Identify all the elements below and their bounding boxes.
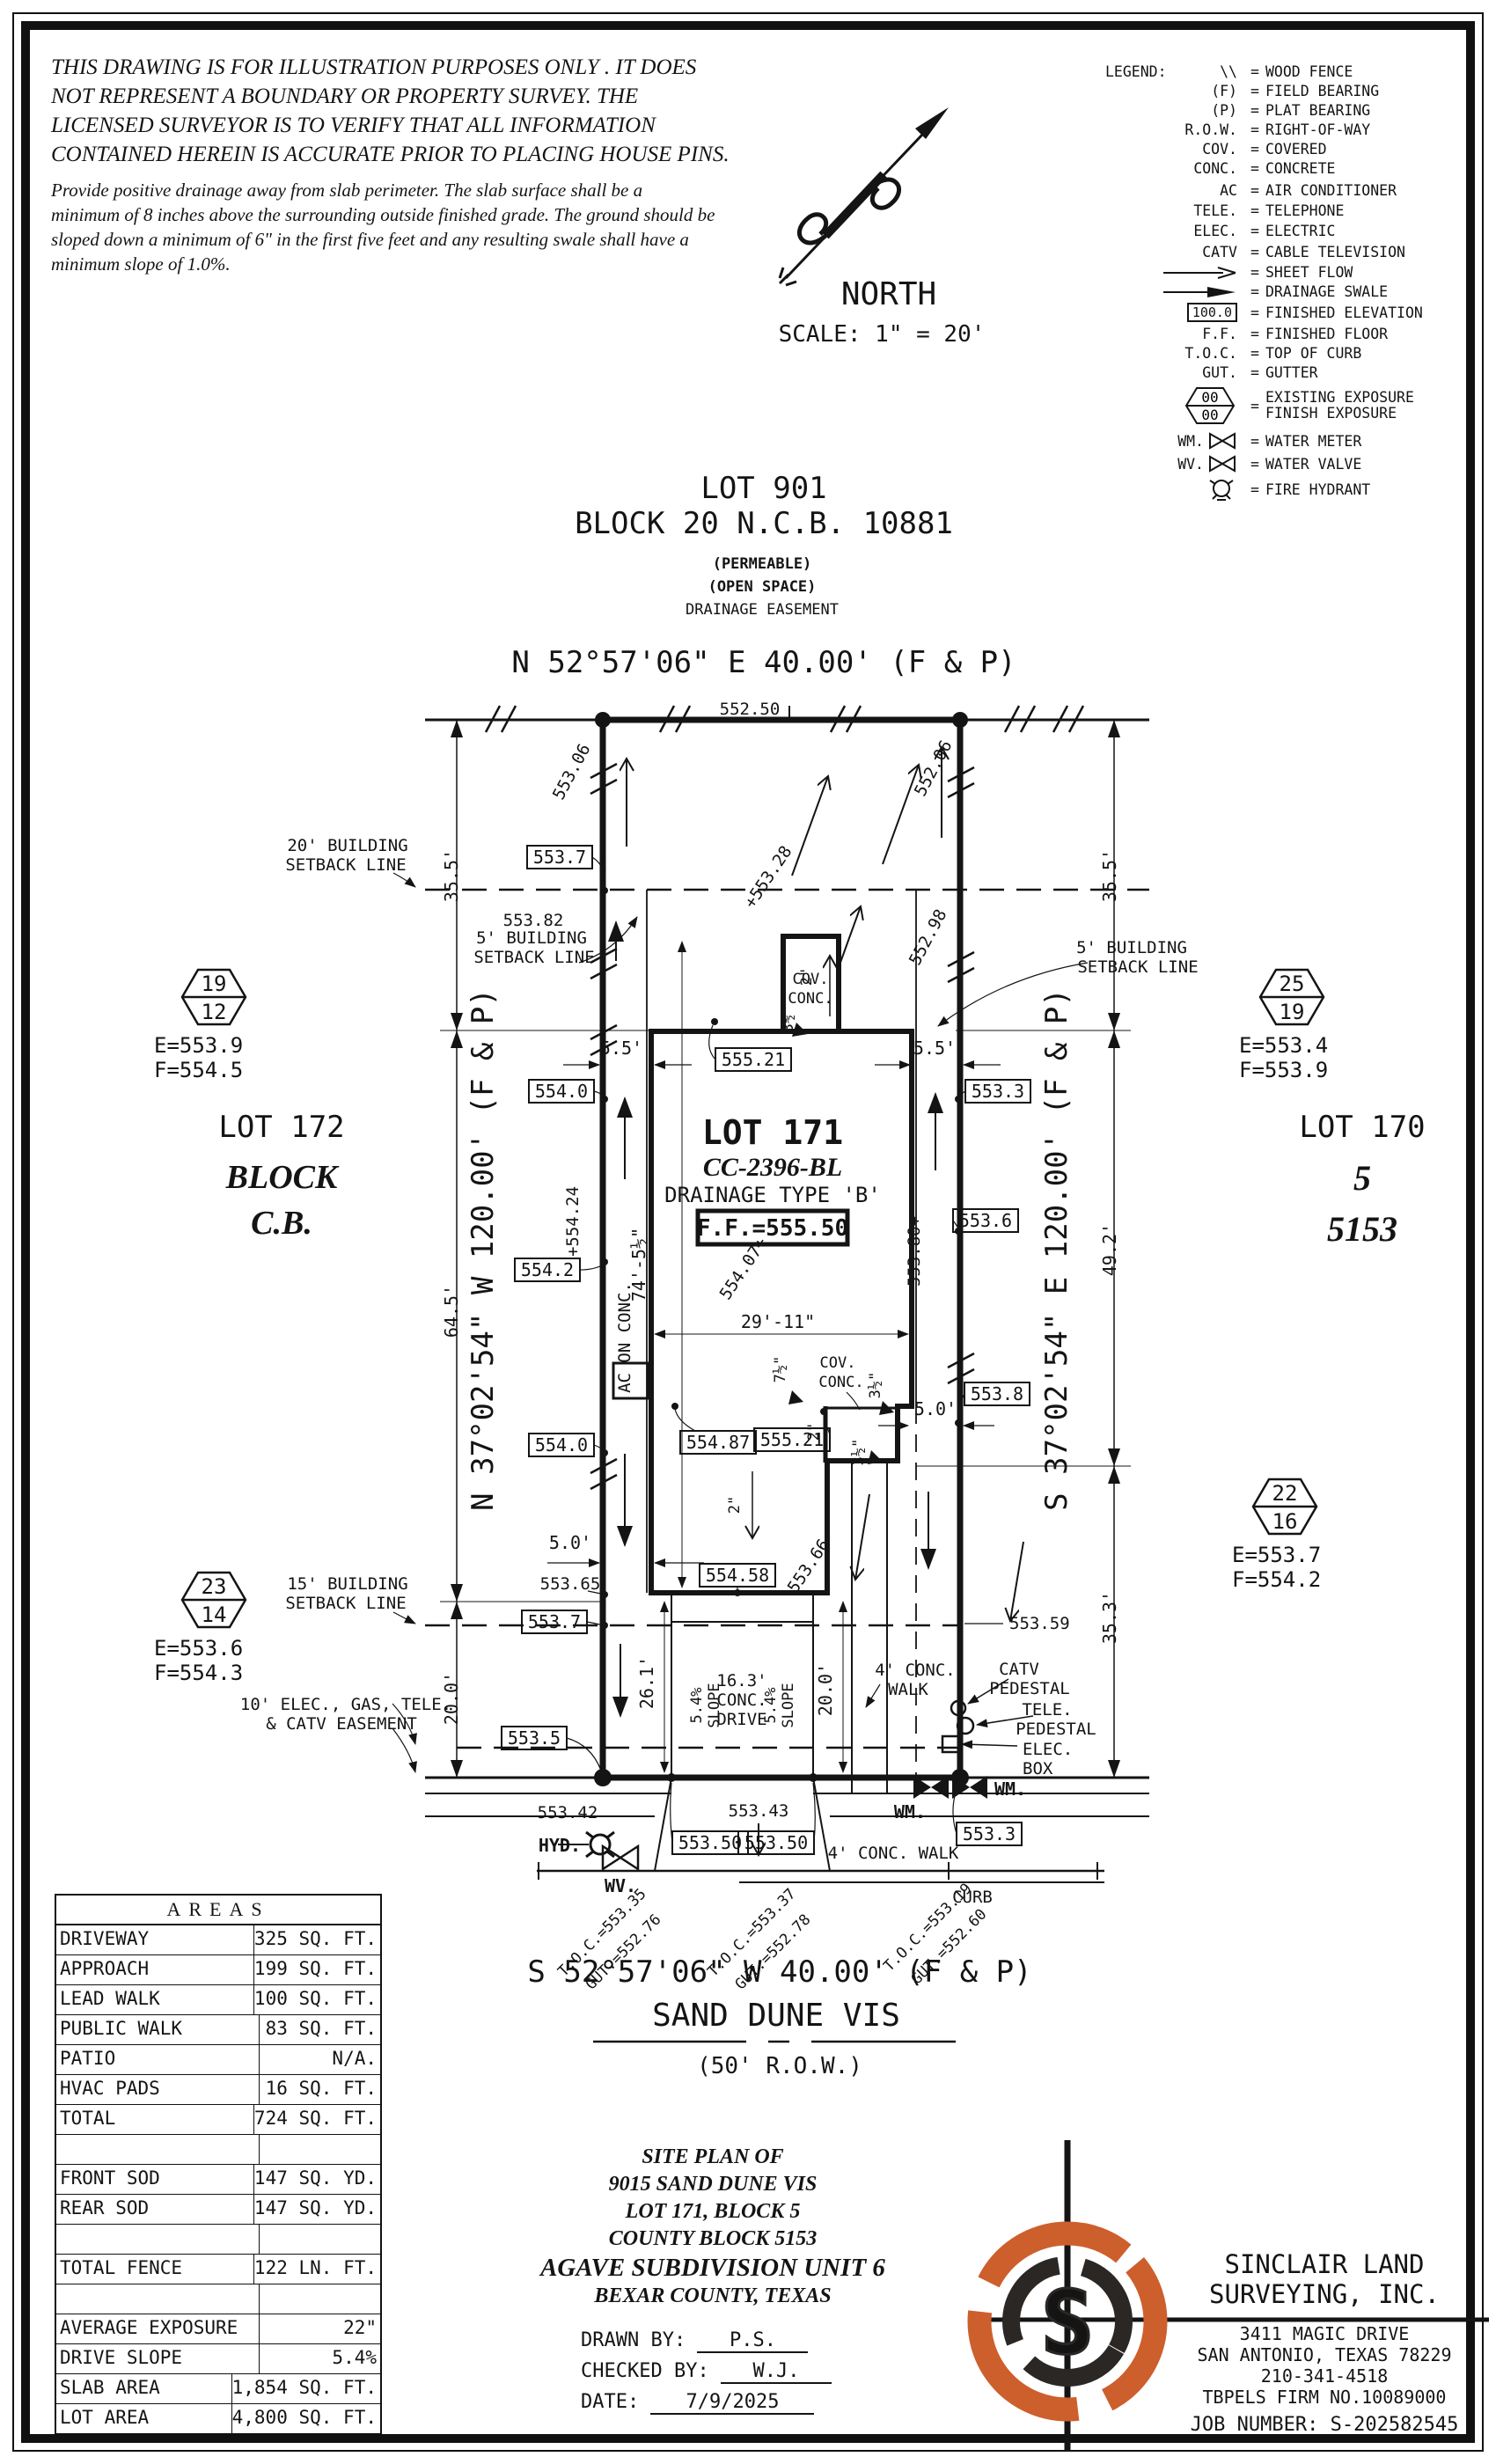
adjacent-cb-number-right: 5153 (1327, 1209, 1397, 1249)
svg-text:5.0': 5.0' (914, 1398, 957, 1419)
street-name: SAND DUNE VIS (652, 1998, 900, 2034)
table-row-blank (56, 2135, 380, 2165)
svg-text:553.42: 553.42 (538, 1803, 598, 1822)
water-valve-symbol (603, 1846, 638, 1869)
company-address: SAN ANTONIO, TEXAS 78229 (1175, 2344, 1474, 2365)
svg-text:553.50: 553.50 (678, 1832, 742, 1853)
svg-text:26.1': 26.1' (636, 1656, 657, 1709)
svg-text:SLOPE: SLOPE (780, 1683, 797, 1727)
bearing-east: S 37°02'54" E 120.00' (F & P) (1039, 988, 1074, 1511)
survey-sheet: THIS DRAWING IS FOR ILLUSTRATION PURPOSE… (0, 0, 1496, 2464)
house-outline (613, 936, 912, 1622)
svg-text:553.06: 553.06 (549, 741, 595, 803)
street-row-width: (50' R.O.W.) (697, 2053, 862, 2079)
svg-text:552.98: 552.98 (906, 906, 951, 969)
adjacent-block-right: 5 (1353, 1158, 1371, 1198)
svg-text:15' BUILDING: 15' BUILDING (287, 1574, 407, 1594)
title-address: 9015 SAND DUNE VIS (493, 2171, 933, 2198)
svg-text:+553.28: +553.28 (741, 842, 796, 912)
table-row: REAR SOD147 SQ. YD. (56, 2195, 380, 2225)
svg-text:553.3: 553.3 (963, 1823, 1016, 1844)
svg-text:COV.: COV. (820, 1354, 856, 1372)
svg-text:16: 16 (1272, 1509, 1298, 1534)
adjacent-block-left: BLOCK (225, 1159, 340, 1196)
company-phone: 210-341-4518 (1175, 2365, 1474, 2387)
svg-text:+554.24: +554.24 (563, 1186, 583, 1257)
table-row: FRONT SOD147 SQ. YD. (56, 2165, 380, 2195)
svg-text:5.4%: 5.4% (762, 1688, 780, 1724)
areas-table-title: AREAS (56, 1896, 380, 1925)
adjacent-lot-left: LOT 172 (218, 1110, 344, 1145)
checked-by-label: CHECKED BY: (581, 2360, 709, 2382)
table-row: AVERAGE EXPOSURE22" (56, 2314, 380, 2344)
svg-text:5.0': 5.0' (549, 1532, 591, 1553)
scale-label: SCALE: 1" = 20' (779, 321, 986, 348)
exposure-hexagon-left-top: 19 12 E=553.9 F=554.5 (154, 970, 246, 1082)
svg-text:10' ELEC., GAS, TELE.: 10' ELEC., GAS, TELE. (240, 1695, 451, 1714)
svg-text:5' BUILDING: 5' BUILDING (476, 928, 587, 948)
svg-text:E=553.9: E=553.9 (154, 1033, 243, 1058)
svg-text:23: 23 (202, 1574, 227, 1599)
svg-text:DRIVE: DRIVE (716, 1710, 766, 1729)
table-row-blank (56, 2284, 380, 2314)
svg-text:4' CONC. WALK: 4' CONC. WALK (828, 1844, 959, 1863)
svg-text:14: 14 (202, 1602, 227, 1627)
svg-text:553.59: 553.59 (1009, 1614, 1070, 1633)
svg-text:CONC.: CONC. (818, 1374, 863, 1391)
company-address: 3411 MAGIC DRIVE (1175, 2323, 1474, 2344)
svg-text:553.6: 553.6 (959, 1210, 1012, 1231)
areas-table: AREAS DRIVEWAY325 SQ. FT. APPROACH199 SQ… (55, 1894, 382, 2435)
logo-letter-s: S (1041, 2271, 1094, 2374)
table-row: HVAC PADS16 SQ. FT. (56, 2075, 380, 2105)
finished-floor-box: F.F.=555.50 (697, 1211, 848, 1244)
svg-text:5.5': 5.5' (600, 1038, 642, 1059)
svg-text:554.58: 554.58 (706, 1565, 769, 1586)
svg-text:CONC.: CONC. (788, 990, 832, 1008)
svg-text:22: 22 (1272, 1481, 1298, 1506)
lot171-title: LOT 171 (702, 1113, 843, 1152)
bearing-south: S 52°57'06" W 40.00' (F & P) (527, 1954, 1031, 1990)
drawn-by-label: DRAWN BY: (581, 2329, 686, 2351)
adjacent-lot-right: LOT 170 (1299, 1110, 1425, 1145)
svg-text:554.0: 554.0 (535, 1434, 588, 1456)
svg-text:552.50: 552.50 (720, 700, 781, 719)
svg-text:553.3: 553.3 (972, 1081, 1024, 1102)
table-row: TOTAL724 SQ. FT. (56, 2105, 380, 2135)
svg-text:49.2': 49.2' (1099, 1223, 1120, 1276)
svg-text:553.82: 553.82 (503, 911, 564, 930)
svg-text:19: 19 (1280, 1000, 1305, 1024)
svg-text:HYD.: HYD. (539, 1835, 581, 1856)
title-county-block: COUNTY BLOCK 5153 (493, 2226, 933, 2253)
svg-text:F=554.2: F=554.2 (1232, 1567, 1321, 1592)
svg-text:553.8: 553.8 (971, 1383, 1023, 1404)
company-block: SINCLAIR LAND SURVEYING, INC. 3411 MAGIC… (1175, 2249, 1474, 2436)
svg-text:PEDESTAL: PEDESTAL (989, 1679, 1070, 1698)
svg-text:553.5: 553.5 (508, 1727, 561, 1749)
svg-text:25: 25 (1280, 972, 1305, 996)
svg-text:BOX: BOX (1023, 1759, 1053, 1778)
svg-text:35.5': 35.5' (1099, 849, 1120, 902)
lot171-drainage-type: DRAINAGE TYPE 'B' (664, 1183, 881, 1207)
north-label: NORTH (841, 276, 936, 312)
svg-text:553.65: 553.65 (540, 1574, 601, 1594)
svg-text:SLOPE: SLOPE (706, 1683, 723, 1727)
svg-text:553.80+: 553.80+ (905, 1216, 924, 1287)
svg-text:WALK: WALK (888, 1680, 928, 1699)
table-row: LEAD WALK100 SQ. FT. (56, 1985, 380, 2015)
svg-text:5.5': 5.5' (913, 1038, 956, 1059)
title-line: SITE PLAN OF (493, 2144, 933, 2171)
date-value: 7/9/2025 (650, 2391, 814, 2415)
svg-text:7½": 7½" (772, 1356, 789, 1383)
svg-text:553.43: 553.43 (729, 1801, 789, 1821)
svg-text:F=554.5: F=554.5 (154, 1058, 243, 1082)
svg-text:CATV: CATV (999, 1660, 1039, 1679)
date-label: DATE: (581, 2391, 639, 2413)
table-row: APPROACH199 SQ. FT. (56, 1955, 380, 1985)
svg-text:553.50: 553.50 (744, 1832, 808, 1853)
svg-text:WM.: WM. (894, 1801, 926, 1822)
drainage-easement-note: DRAINAGE EASEMENT (686, 601, 839, 619)
svg-text:554.2: 554.2 (521, 1259, 574, 1280)
svg-text:12: 12 (202, 1000, 227, 1024)
lot901-block: BLOCK 20 N.C.B. 10881 (575, 506, 953, 541)
svg-text:SETBACK LINE: SETBACK LINE (285, 1594, 406, 1613)
drawn-by-value: P.S. (697, 2329, 808, 2353)
svg-text:4' CONC.: 4' CONC. (875, 1661, 956, 1680)
svg-text:COV.: COV. (793, 971, 829, 988)
table-row: DRIVEWAY325 SQ. FT. (56, 1925, 380, 1955)
table-row: PUBLIC WALK83 SQ. FT. (56, 2015, 380, 2045)
svg-text:553.7: 553.7 (528, 1611, 581, 1632)
svg-text:TELE.: TELE. (1022, 1700, 1072, 1720)
svg-text:E=553.7: E=553.7 (1232, 1543, 1321, 1567)
svg-text:19: 19 (202, 972, 227, 996)
svg-text:SETBACK LINE: SETBACK LINE (1077, 957, 1198, 977)
svg-text:5' BUILDING: 5' BUILDING (1076, 938, 1187, 957)
company-name: SURVEYING, INC. (1175, 2279, 1474, 2309)
company-name: SINCLAIR LAND (1175, 2249, 1474, 2279)
svg-text:SETBACK LINE: SETBACK LINE (473, 948, 594, 967)
lot901-title: LOT 901 (700, 471, 826, 506)
elec-box-symbol (942, 1736, 1017, 1752)
title-block: SITE PLAN OF 9015 SAND DUNE VIS LOT 171,… (493, 2144, 933, 2422)
svg-text:16.3': 16.3' (716, 1671, 766, 1690)
svg-text:PEDESTAL: PEDESTAL (1016, 1720, 1096, 1739)
svg-text:20' BUILDING: 20' BUILDING (287, 836, 407, 855)
svg-text:F=554.3: F=554.3 (154, 1661, 243, 1685)
svg-text:SETBACK LINE: SETBACK LINE (285, 855, 406, 875)
svg-text:29'-11": 29'-11" (741, 1311, 815, 1332)
svg-text:64.5': 64.5' (441, 1285, 462, 1338)
svg-text:F=553.9: F=553.9 (1239, 1058, 1328, 1082)
title-county: BEXAR COUNTY, TEXAS (493, 2283, 933, 2310)
exposure-hexagon-right-bottom: 22 16 E=553.7 F=554.2 (1232, 1479, 1321, 1592)
svg-text:35.5': 35.5' (441, 849, 462, 902)
permeable-note: (PERMEABLE) (713, 555, 812, 573)
svg-text:AC ON CONC.: AC ON CONC. (615, 1282, 634, 1393)
checked-by-value: W.J. (721, 2360, 832, 2384)
exposure-hexagon-right-top: 25 19 E=553.4 F=553.9 (1239, 970, 1328, 1082)
svg-text:E=553.4: E=553.4 (1239, 1033, 1328, 1058)
exposure-hexagon-left-bottom: 23 14 E=553.6 F=554.3 (154, 1573, 246, 1685)
svg-text:ELEC.: ELEC. (1023, 1740, 1073, 1759)
svg-text:2": 2" (805, 1423, 823, 1441)
table-row: DRIVE SLOPE5.4% (56, 2344, 380, 2374)
svg-text:WM.: WM. (994, 1778, 1026, 1800)
svg-text:553.7: 553.7 (533, 847, 586, 868)
svg-text:2": 2" (726, 1496, 744, 1514)
lot171-cc-number: CC-2396-BL (703, 1153, 842, 1182)
open-space-note: (OPEN SPACE) (708, 578, 817, 596)
svg-text:3½": 3½" (850, 1439, 868, 1466)
table-row-blank (56, 2225, 380, 2255)
bearing-west: N 37°02'54" W 120.00' (F & P) (466, 988, 501, 1511)
svg-text:5.4%: 5.4% (688, 1688, 706, 1724)
table-row: TOTAL FENCE122 LN. FT. (56, 2255, 380, 2284)
north-arrow (780, 107, 949, 285)
svg-text:20.0': 20.0' (815, 1663, 836, 1716)
svg-text:554.87: 554.87 (686, 1432, 750, 1453)
adjacent-cb-left: C.B. (251, 1205, 312, 1242)
svg-text:554.0: 554.0 (535, 1081, 588, 1102)
table-row: PATION/A. (56, 2045, 380, 2075)
job-number: JOB NUMBER: S-202582545 (1175, 2414, 1474, 2436)
svg-text:555.21: 555.21 (722, 1049, 785, 1070)
title-subdivision: AGAVE SUBDIVISION UNIT 6 (493, 2253, 933, 2283)
company-firm-number: TBPELS FIRM NO.10089000 (1175, 2387, 1474, 2408)
svg-text:E=553.6: E=553.6 (154, 1636, 243, 1661)
bearing-north: N 52°57'06" E 40.00' (F & P) (511, 645, 1016, 680)
svg-text:35.3': 35.3' (1099, 1591, 1120, 1644)
svg-text:3½": 3½" (867, 1372, 884, 1399)
svg-text:CONC.: CONC. (716, 1690, 766, 1710)
table-row: SLAB AREA1,854 SQ. FT. (56, 2374, 380, 2404)
table-row: LOT AREA4,800 SQ. FT. (56, 2404, 380, 2433)
title-lot-block: LOT 171, BLOCK 5 (493, 2198, 933, 2226)
svg-text:F.F.=555.50: F.F.=555.50 (697, 1215, 848, 1242)
